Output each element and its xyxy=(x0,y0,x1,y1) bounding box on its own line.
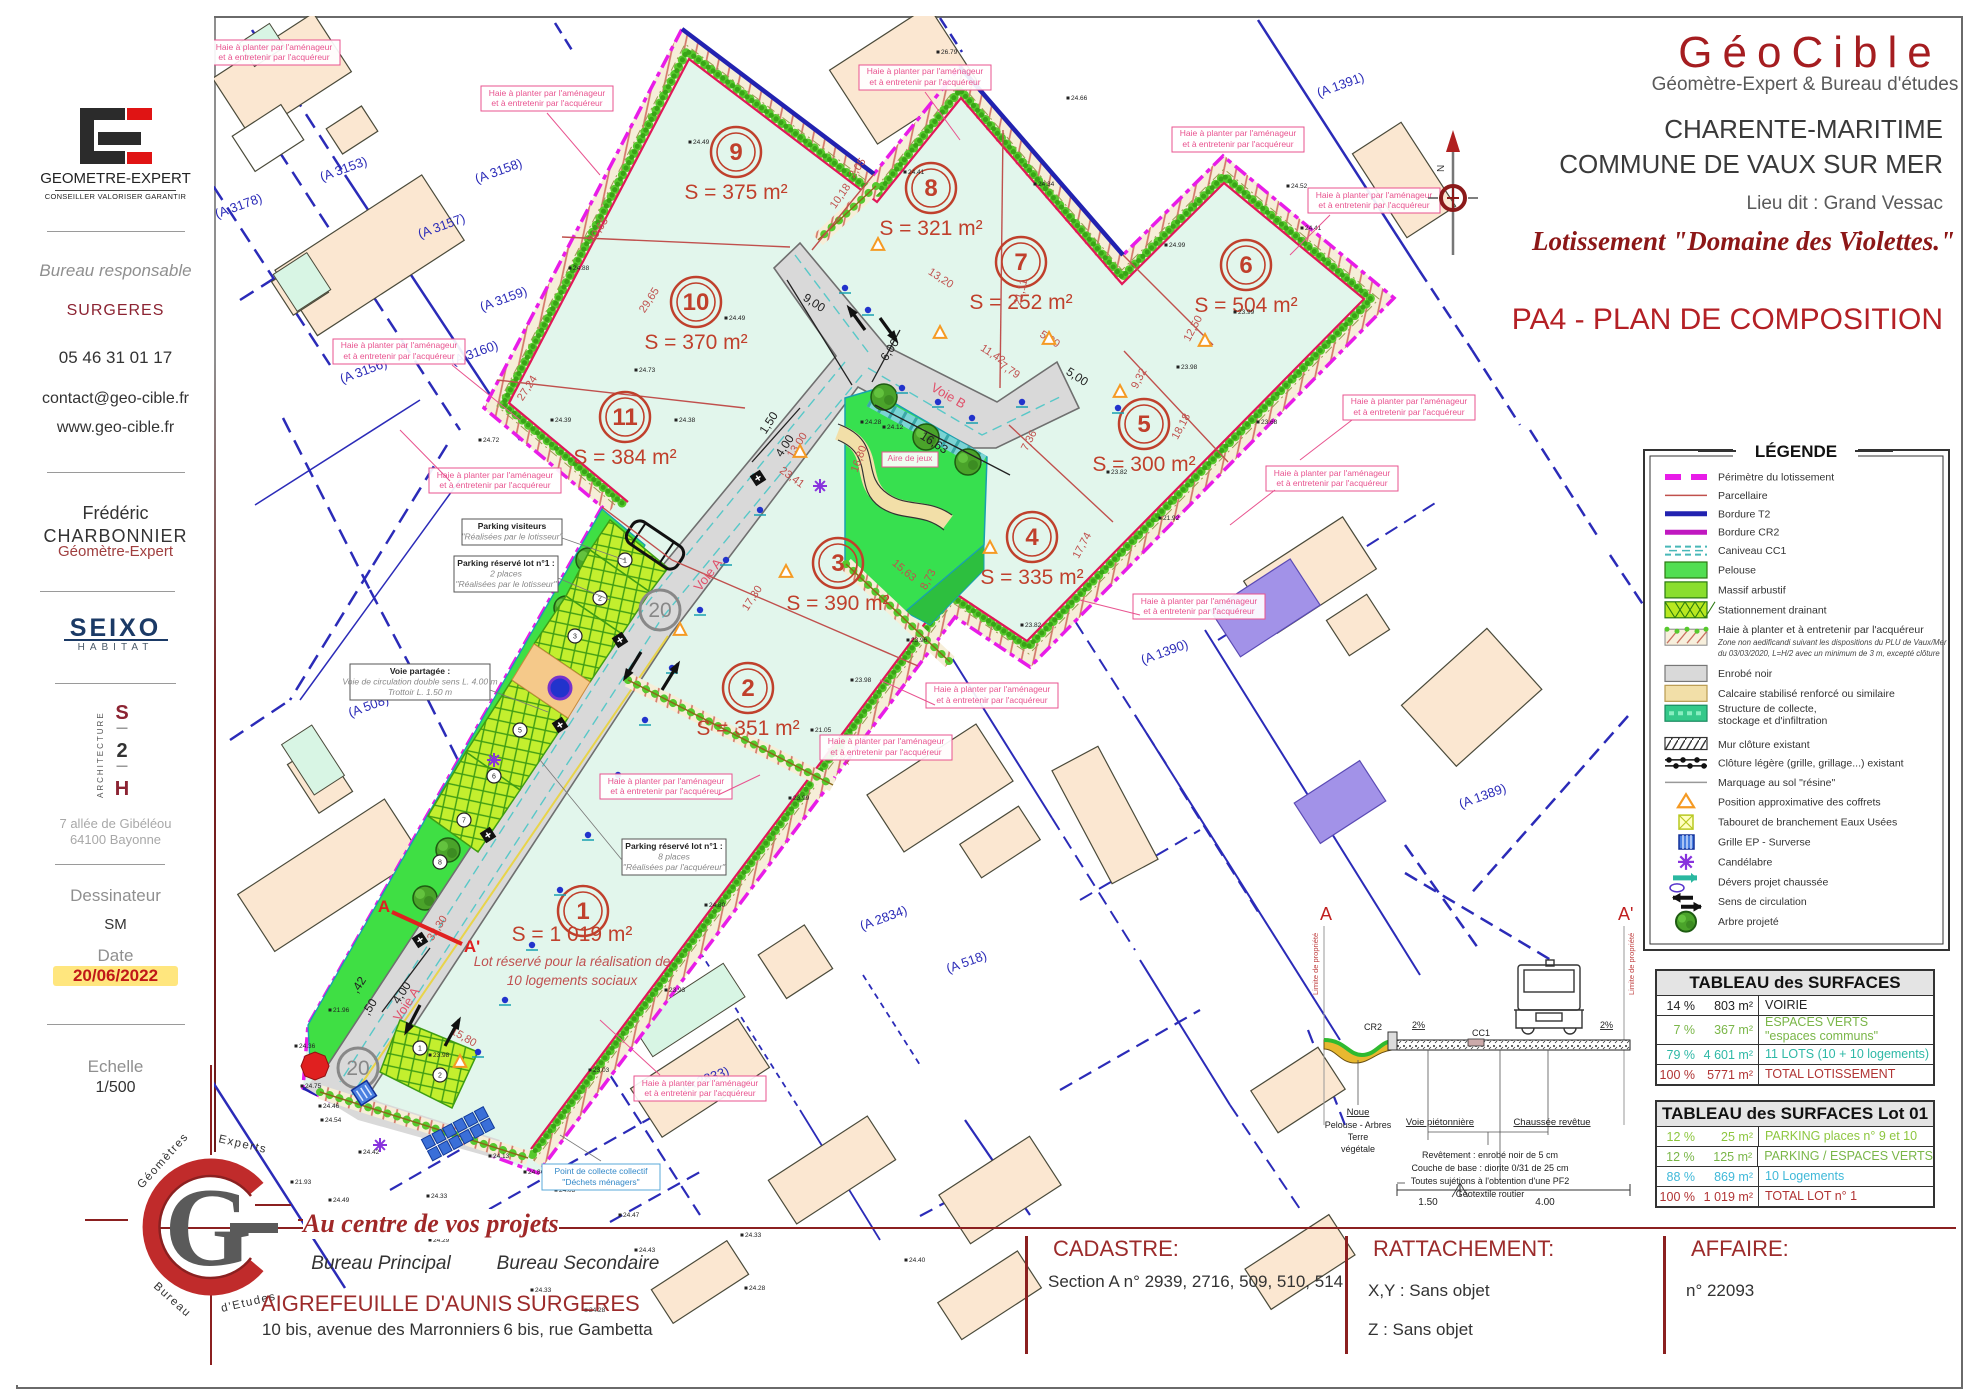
svg-text:A': A' xyxy=(1618,904,1633,924)
svg-text:23.68: 23.68 xyxy=(1261,419,1278,426)
svg-text:"Déchets ménagers": "Déchets ménagers" xyxy=(562,1177,639,1187)
svg-text:10 logements sociaux: 10 logements sociaux xyxy=(507,973,639,988)
svg-text:S = 1 019 m²: S = 1 019 m² xyxy=(512,923,633,946)
svg-text:et à entretenir par l'acquéreu: et à entretenir par l'acquéreur xyxy=(218,52,329,62)
svg-text:(A 3158): (A 3158) xyxy=(473,155,524,186)
svg-text:(A 3159): (A 3159) xyxy=(478,283,529,314)
svg-text:23.99: 23.99 xyxy=(793,795,810,802)
svg-text:Toutes sujétions à l'obtention: Toutes sujétions à l'obtention d'une PF2 xyxy=(1411,1176,1570,1186)
svg-text:et à entretenir par l'acquéreu: et à entretenir par l'acquéreur xyxy=(491,98,602,108)
svg-text:21.92: 21.92 xyxy=(1163,515,1180,522)
svg-text:du 03/03/2020, L=H/2 avec un m: du 03/03/2020, L=H/2 avec un minimum de … xyxy=(1718,649,1940,658)
svg-text:23.98: 23.98 xyxy=(1181,364,1198,371)
svg-text:24.33: 24.33 xyxy=(431,1193,448,1200)
svg-text:CC1: CC1 xyxy=(1472,1028,1490,1038)
svg-text:Limite de propriété: Limite de propriété xyxy=(1627,933,1636,995)
svg-text:Haie à planter par l'aménageur: Haie à planter par l'aménageur xyxy=(934,684,1051,694)
svg-text:(A 3153): (A 3153) xyxy=(318,153,369,184)
svg-text:2%: 2% xyxy=(1412,1020,1425,1030)
svg-text:6: 6 xyxy=(492,774,496,781)
svg-text:Haie à planter par l'aménageur: Haie à planter par l'aménageur xyxy=(608,776,725,786)
svg-text:21.96: 21.96 xyxy=(333,1007,350,1014)
svg-text:(A 518): (A 518) xyxy=(944,948,989,976)
svg-text:Voie partagée :: Voie partagée : xyxy=(390,666,450,676)
svg-text:Parcellaire: Parcellaire xyxy=(1718,490,1768,502)
svg-text:stockage et d'infiltration: stockage et d'infiltration xyxy=(1718,715,1828,727)
svg-text:9: 9 xyxy=(729,139,742,166)
svg-text:Trottoir L. 1.50 m: Trottoir L. 1.50 m xyxy=(388,687,452,697)
svg-text:LÉGENDE: LÉGENDE xyxy=(1755,442,1837,461)
svg-text:et à entretenir par l'acquéreu: et à entretenir par l'acquéreur xyxy=(343,351,454,361)
svg-text:23.93: 23.93 xyxy=(669,987,686,994)
svg-text:8: 8 xyxy=(438,860,442,867)
svg-text:Haie à planter par l'aménageur: Haie à planter par l'aménageur xyxy=(341,340,458,350)
svg-text:Haie à planter par l'aménageur: Haie à planter par l'aménageur xyxy=(642,1078,759,1088)
svg-text:Voie de circulation double sen: Voie de circulation double sens L. 4.00 … xyxy=(342,677,497,687)
svg-text:23.82: 23.82 xyxy=(1025,622,1042,629)
svg-text:3: 3 xyxy=(573,634,577,641)
svg-text:S = 351 m²: S = 351 m² xyxy=(696,717,799,740)
svg-text:24.28: 24.28 xyxy=(865,419,882,426)
svg-text:24.80: 24.80 xyxy=(709,902,726,909)
svg-text:2 places: 2 places xyxy=(489,569,522,579)
svg-text:S = 335 m²: S = 335 m² xyxy=(980,566,1083,589)
svg-text:et à entretenir par l'acquéreu: et à entretenir par l'acquéreur xyxy=(1276,478,1387,488)
svg-text:1: 1 xyxy=(576,898,589,925)
svg-text:Arbre projeté: Arbre projeté xyxy=(1718,916,1779,928)
svg-text:2: 2 xyxy=(741,675,754,702)
svg-text:Candélabre: Candélabre xyxy=(1718,856,1772,868)
svg-text:Massif arbustif: Massif arbustif xyxy=(1718,584,1786,596)
svg-text:21.05: 21.05 xyxy=(815,727,832,734)
svg-text:1.50: 1.50 xyxy=(1418,1197,1438,1208)
svg-text:Marquage au sol "résine": Marquage au sol "résine" xyxy=(1718,777,1835,789)
svg-text:et à entretenir par l'acquéreu: et à entretenir par l'acquéreur xyxy=(1143,606,1254,616)
svg-text:(A 1390): (A 1390) xyxy=(1139,636,1190,667)
svg-text:4.00: 4.00 xyxy=(1535,1197,1555,1208)
svg-text:Haie à planter par l'aménageur: Haie à planter par l'aménageur xyxy=(867,66,984,76)
svg-text:et à entretenir par l'acquéreu: et à entretenir par l'acquéreur xyxy=(869,77,980,87)
svg-text:24.66: 24.66 xyxy=(1071,95,1088,102)
svg-text:A': A' xyxy=(464,937,480,956)
svg-text:Noue: Noue xyxy=(1347,1107,1370,1118)
svg-text:végétale: végétale xyxy=(1341,1144,1375,1154)
svg-text:Parking réservé lot n°1 :: Parking réservé lot n°1 : xyxy=(457,558,555,568)
svg-text:"Réalisées par l'acquéreur": "Réalisées par l'acquéreur" xyxy=(623,862,726,872)
svg-text:24.34: 24.34 xyxy=(1038,181,1055,188)
svg-text:"Réalisées par le lotisseur": "Réalisées par le lotisseur" xyxy=(456,579,558,589)
svg-text:24.12: 24.12 xyxy=(887,424,904,431)
svg-text:et à entretenir par l'acquéreu: et à entretenir par l'acquéreur xyxy=(644,1088,755,1098)
svg-text:Haie à planter et à entretenir: Haie à planter et à entretenir par l'acq… xyxy=(1718,624,1924,636)
svg-text:10: 10 xyxy=(683,289,710,316)
svg-text:Stationnement drainant: Stationnement drainant xyxy=(1718,604,1827,616)
svg-text:Lot réservé pour la réalisatio: Lot réservé pour la réalisation de xyxy=(474,954,671,969)
svg-text:Dévers projet chaussée: Dévers projet chaussée xyxy=(1718,876,1828,888)
svg-text:et à entretenir par l'acquéreu: et à entretenir par l'acquéreur xyxy=(439,480,550,490)
svg-text:A: A xyxy=(1320,904,1332,924)
svg-text:4: 4 xyxy=(1025,524,1039,551)
svg-text:2: 2 xyxy=(438,1073,442,1080)
svg-text:et à entretenir par l'acquéreu: et à entretenir par l'acquéreur xyxy=(610,786,721,796)
svg-text:(A 1391): (A 1391) xyxy=(1315,69,1366,100)
svg-text:6: 6 xyxy=(1239,252,1252,279)
svg-text:Haie à planter par l'aménageur: Haie à planter par l'aménageur xyxy=(1180,128,1297,138)
svg-text:3: 3 xyxy=(831,550,844,577)
svg-text:Mur clôture existant: Mur clôture existant xyxy=(1718,739,1810,751)
svg-text:24.52: 24.52 xyxy=(1291,183,1308,190)
svg-text:Enrobé noir: Enrobé noir xyxy=(1718,668,1773,680)
svg-text:(A 2834): (A 2834) xyxy=(858,902,909,933)
svg-text:et à entretenir par l'acquéreu: et à entretenir par l'acquéreur xyxy=(830,747,941,757)
svg-text:Sens de circulation: Sens de circulation xyxy=(1718,896,1807,908)
svg-text:24.36: 24.36 xyxy=(299,1043,316,1050)
svg-text:7: 7 xyxy=(462,818,466,825)
svg-text:24.13: 24.13 xyxy=(493,1153,510,1160)
svg-text:24.40: 24.40 xyxy=(909,1257,926,1264)
svg-text:S = 375 m²: S = 375 m² xyxy=(684,181,787,204)
svg-text:8: 8 xyxy=(924,175,937,202)
svg-text:Limite de propriété: Limite de propriété xyxy=(1311,933,1320,995)
svg-text:23.99: 23.99 xyxy=(1238,309,1255,316)
svg-text:24.49: 24.49 xyxy=(693,139,710,146)
svg-text:Haie à planter par l'aménageur: Haie à planter par l'aménageur xyxy=(489,88,606,98)
svg-text:Parking visiteurs: Parking visiteurs xyxy=(478,521,547,531)
svg-text:et à entretenir par l'acquéreu: et à entretenir par l'acquéreur xyxy=(1182,139,1293,149)
svg-text:Position approximative des cof: Position approximative des coffrets xyxy=(1718,797,1881,809)
svg-text:Grille EP - Surverse: Grille EP - Surverse xyxy=(1718,837,1811,849)
svg-text:Haie à planter par l'aménageur: Haie à planter par l'aménageur xyxy=(1141,596,1258,606)
svg-text:24.28: 24.28 xyxy=(749,1285,766,1292)
svg-text:5: 5 xyxy=(1137,411,1150,438)
svg-text:Périmètre du lotissement: Périmètre du lotissement xyxy=(1718,472,1834,484)
svg-text:24.38: 24.38 xyxy=(679,417,696,424)
svg-text:24.73: 24.73 xyxy=(639,367,656,374)
svg-text:23.96: 23.96 xyxy=(911,637,928,644)
svg-text:7: 7 xyxy=(1014,249,1027,276)
svg-text:5: 5 xyxy=(518,728,522,735)
svg-text:Haie à planter par l'aménageur: Haie à planter par l'aménageur xyxy=(216,42,333,52)
svg-text:S = 321 m²: S = 321 m² xyxy=(879,217,982,240)
svg-text:Revêtement : enrobé noir de 5: Revêtement : enrobé noir de 5 cm xyxy=(1422,1150,1558,1160)
svg-text:Tabouret de branchement Eaux U: Tabouret de branchement Eaux Usées xyxy=(1718,817,1897,829)
svg-text:A: A xyxy=(378,897,390,916)
svg-text:24.41: 24.41 xyxy=(908,169,925,176)
svg-text:"Réalisées par le lotisseur": "Réalisées par le lotisseur" xyxy=(462,532,564,542)
svg-text:26.79: 26.79 xyxy=(941,49,958,56)
svg-text:24.99: 24.99 xyxy=(1169,242,1186,249)
svg-text:Chaussée revêtue: Chaussée revêtue xyxy=(1513,1117,1590,1128)
svg-text:8 places: 8 places xyxy=(658,852,690,862)
svg-text:2%: 2% xyxy=(1600,1020,1613,1030)
svg-text:23.98: 23.98 xyxy=(855,677,872,684)
svg-text:et à entretenir par l'acquéreu: et à entretenir par l'acquéreur xyxy=(1353,407,1464,417)
svg-text:S = 370 m²: S = 370 m² xyxy=(644,331,747,354)
svg-text:24.39: 24.39 xyxy=(555,417,572,424)
svg-text:1: 1 xyxy=(623,558,627,565)
svg-text:Couche de base : diorite 0/31: Couche de base : diorite 0/31 de 25 cm xyxy=(1411,1163,1568,1173)
svg-text:24.72: 24.72 xyxy=(483,437,500,444)
svg-text:Experts: Experts xyxy=(217,1133,268,1156)
svg-text:11: 11 xyxy=(612,404,637,431)
svg-text:24.88: 24.88 xyxy=(573,265,590,272)
svg-text:CR2: CR2 xyxy=(1364,1022,1382,1032)
svg-text:23.82: 23.82 xyxy=(1111,469,1128,476)
svg-text:Structure de collecte,: Structure de collecte, xyxy=(1718,703,1817,715)
svg-text:Voie piétonnière: Voie piétonnière xyxy=(1406,1117,1474,1128)
svg-text:S = 390 m²: S = 390 m² xyxy=(786,592,889,615)
svg-text:24.33: 24.33 xyxy=(745,1232,762,1239)
svg-text:23.98: 23.98 xyxy=(433,1052,450,1059)
svg-text:Parking réservé lot n°1 :: Parking réservé lot n°1 : xyxy=(625,841,723,851)
svg-text:24.49: 24.49 xyxy=(729,315,746,322)
svg-text:Clôture légère (grille, grilla: Clôture légère (grille, grillage...) exi… xyxy=(1718,757,1904,769)
svg-text:Calcaire stabilisé renforcé ou: Calcaire stabilisé renforcé ou similaire xyxy=(1718,688,1895,700)
svg-text:Aire de jeux: Aire de jeux xyxy=(888,453,934,463)
svg-text:Zone non aedificandi suivant l: Zone non aedificandi suivant les disposi… xyxy=(1717,638,1947,647)
svg-text:Haie à planter par l'aménageur: Haie à planter par l'aménageur xyxy=(828,736,945,746)
svg-text:1: 1 xyxy=(418,1046,422,1053)
svg-text:Haie à planter par l'aménageur: Haie à planter par l'aménageur xyxy=(1351,396,1468,406)
svg-text:20: 20 xyxy=(648,599,671,622)
svg-text:Haie à planter par l'aménageur: Haie à planter par l'aménageur xyxy=(437,470,554,480)
svg-text:24.47: 24.47 xyxy=(623,1212,640,1219)
svg-text:Bordure CR2: Bordure CR2 xyxy=(1718,527,1779,539)
svg-text:Pelouse: Pelouse xyxy=(1718,565,1756,577)
svg-text:24.42: 24.42 xyxy=(363,1149,380,1156)
svg-text:Caniveau CC1: Caniveau CC1 xyxy=(1718,545,1786,557)
svg-text:et à entretenir par l'acquéreu: et à entretenir par l'acquéreur xyxy=(936,695,1047,705)
svg-text:23.03: 23.03 xyxy=(593,1067,610,1074)
svg-text:Haie à planter par l'aménageur: Haie à planter par l'aménageur xyxy=(1274,468,1391,478)
svg-text:S = 384 m²: S = 384 m² xyxy=(573,446,676,469)
svg-text:Terre: Terre xyxy=(1348,1132,1369,1142)
svg-text:Pelouse - Arbres: Pelouse - Arbres xyxy=(1325,1120,1392,1130)
svg-text:Point de collecte collectif: Point de collecte collectif xyxy=(554,1166,648,1176)
svg-text:Bordure T2: Bordure T2 xyxy=(1718,508,1770,520)
svg-text:(A 1389): (A 1389) xyxy=(1457,780,1508,811)
